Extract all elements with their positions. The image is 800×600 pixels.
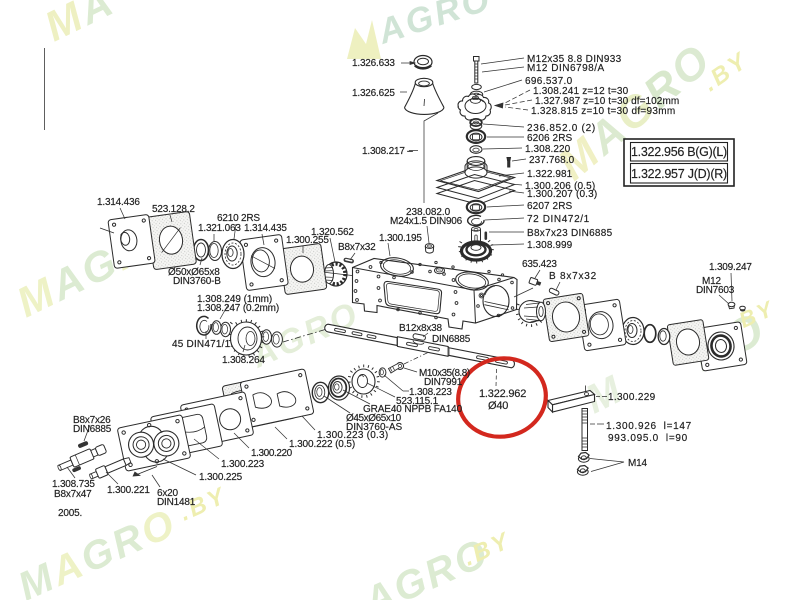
svg-text:635.423: 635.423 (522, 259, 557, 270)
svg-text:1.300.220: 1.300.220 (251, 448, 293, 459)
svg-text:2005.: 2005. (58, 508, 82, 519)
svg-text:B8x7x32: B8x7x32 (338, 242, 376, 253)
svg-text:1.300.255: 1.300.255 (286, 235, 329, 246)
svg-text:M24x1.5 DIN906: M24x1.5 DIN906 (390, 216, 463, 227)
svg-text:6206 2RS: 6206 2RS (527, 133, 573, 144)
svg-text:1.308.999: 1.308.999 (527, 240, 573, 251)
svg-text:1.309.247: 1.309.247 (709, 262, 752, 273)
svg-text:1.326.625: 1.326.625 (352, 88, 395, 99)
svg-text:DIN3760-B: DIN3760-B (173, 276, 221, 287)
svg-text:1.300.926 l=147: 1.300.926 l=147 (606, 421, 692, 432)
svg-text:1.308.247 (0.2mm): 1.308.247 (0.2mm) (197, 303, 279, 314)
svg-text:1.322.956 B(G)(L): 1.322.956 B(G)(L) (631, 145, 727, 159)
svg-text:1.300.207 (0.3): 1.300.207 (0.3) (527, 189, 597, 200)
svg-text:B8x7x23 DIN6885: B8x7x23 DIN6885 (527, 228, 613, 239)
svg-text:1.300.229: 1.300.229 (608, 392, 656, 403)
svg-text:993.095.0 l=90: 993.095.0 l=90 (608, 433, 688, 444)
svg-text:1.300.223: 1.300.223 (221, 459, 265, 470)
svg-text:72 DIN472/1: 72 DIN472/1 (527, 214, 590, 225)
svg-text:523.128.2: 523.128.2 (152, 204, 195, 215)
svg-text:1.300.222 (0.5): 1.300.222 (0.5) (289, 439, 355, 450)
svg-text:1.326.633: 1.326.633 (352, 58, 395, 69)
svg-text:1.328.815 z=10 t=30 df=93mm: 1.328.815 z=10 t=30 df=93mm (531, 106, 675, 117)
svg-text:DIN7603: DIN7603 (696, 285, 735, 296)
svg-text:1.322.962: 1.322.962 (479, 388, 526, 400)
svg-text:1.308.220: 1.308.220 (525, 144, 571, 155)
svg-text:Ø40: Ø40 (488, 400, 508, 412)
svg-text:45 DIN471/1: 45 DIN471/1 (172, 339, 231, 350)
svg-text:B 8x7x32: B 8x7x32 (549, 271, 597, 282)
svg-text:1.314.435: 1.314.435 (244, 223, 287, 234)
svg-text:1.314.436: 1.314.436 (97, 197, 140, 208)
svg-text:1.300.221: 1.300.221 (107, 485, 150, 496)
svg-text:1.300.225: 1.300.225 (199, 472, 243, 483)
svg-text:M12 DIN6798/A: M12 DIN6798/A (527, 63, 605, 74)
svg-text:237.768.0: 237.768.0 (529, 155, 575, 166)
svg-text:1.322.981: 1.322.981 (527, 169, 573, 180)
svg-text:6207 2RS: 6207 2RS (527, 201, 573, 212)
svg-text:B8x7x47: B8x7x47 (54, 489, 92, 500)
svg-text:1.308.217 –: 1.308.217 – (362, 146, 413, 157)
svg-text:1.300.195: 1.300.195 (379, 233, 422, 244)
svg-text:B12x8x38: B12x8x38 (399, 323, 443, 334)
svg-text:DIN6885: DIN6885 (432, 334, 471, 345)
svg-text:1.308.264: 1.308.264 (222, 355, 265, 366)
svg-text:1.321.063: 1.321.063 (198, 223, 241, 234)
svg-text:DIN1481: DIN1481 (157, 497, 196, 508)
svg-text:DIN6885: DIN6885 (73, 424, 112, 435)
svg-text:1.322.957 J(D)(R): 1.322.957 J(D)(R) (631, 167, 727, 181)
svg-text:M14: M14 (628, 458, 647, 469)
